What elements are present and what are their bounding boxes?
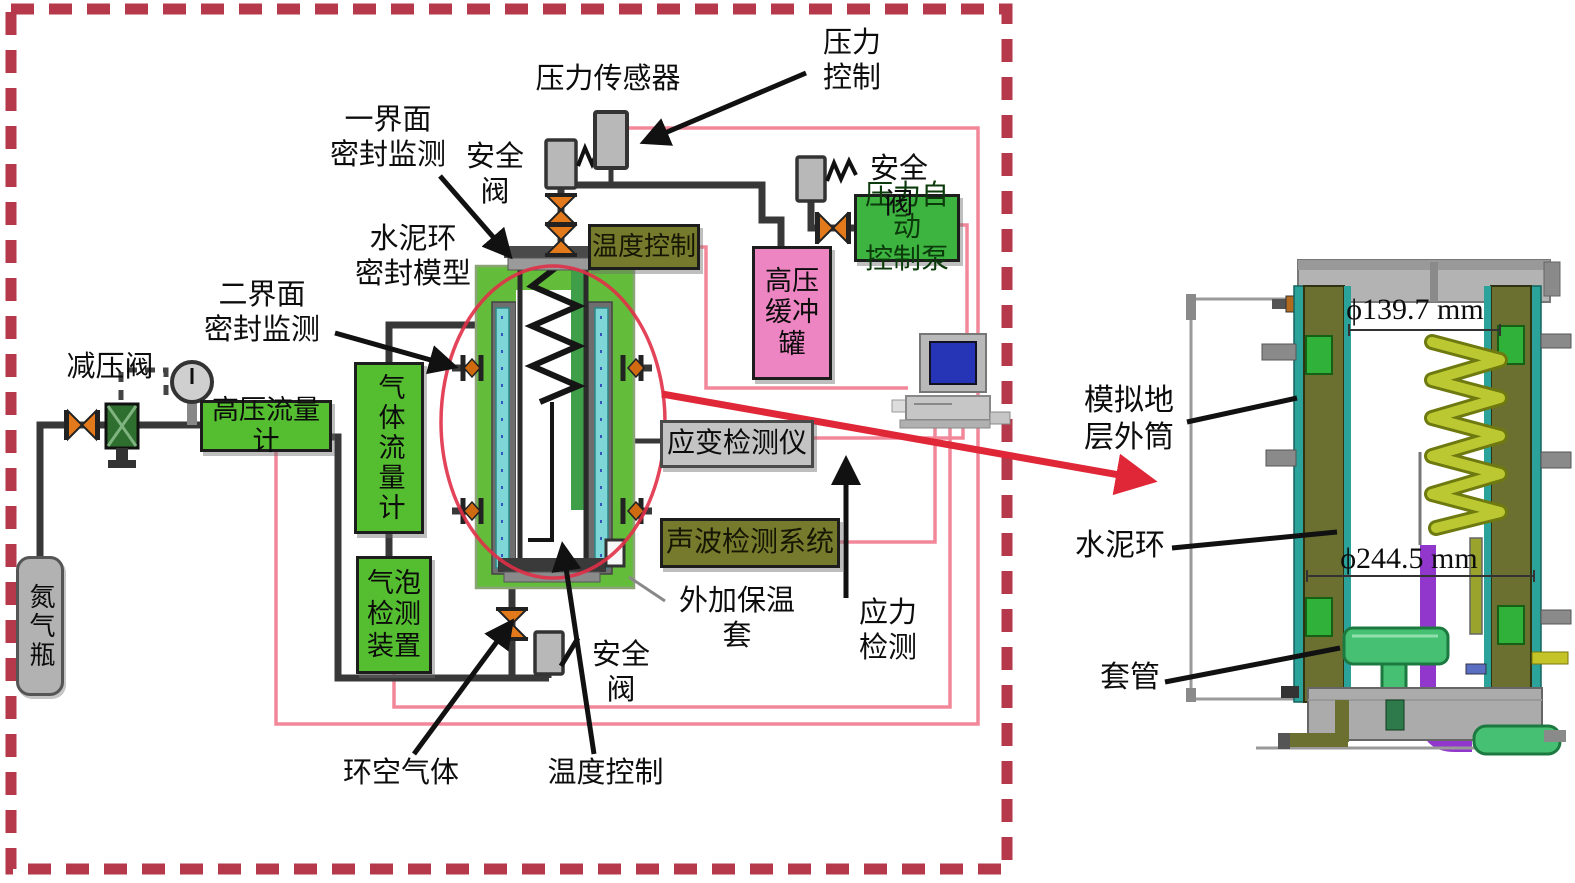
seal-model-vessel [476, 246, 634, 588]
cement-ring-label: 水泥环 [1066, 528, 1174, 565]
outer-cylinder-label: 模拟地 层外筒 [1068, 383, 1190, 456]
cement-seal-model-label: 水泥环 密封模型 [348, 222, 478, 293]
diameter-mid-label: ϕ244.5 mm [1338, 541, 1480, 578]
hp-buffer-tank-box: 高压缓冲罐 [752, 246, 832, 380]
pressure-sensor-icon [595, 112, 627, 168]
hp-flowmeter-box: 高压流量计 [200, 400, 332, 452]
safety-valve-bottom-label: 安全阀 [578, 638, 664, 709]
acoustic-detector-box: 声波检测系统 [660, 518, 840, 568]
nitrogen-bottle: 氮气瓶 [16, 556, 64, 696]
reducer-valve-label: 减压阀 [64, 350, 156, 385]
hp-buffer-tank-label: 高压缓冲罐 [761, 266, 823, 359]
annular-gas-label: 环空气体 [336, 756, 466, 791]
safety-valve-right-label: 安全阀 [856, 152, 942, 223]
computer-icon [892, 334, 1010, 428]
bubble-detector-label: 气泡检测装置 [363, 568, 425, 661]
gas-flowmeter-box: 气体流量计 [354, 362, 424, 534]
temp-control-box: 温度控制 [588, 224, 700, 270]
pressure-sensor-label: 压力传感器 [533, 62, 683, 97]
model-3d [1165, 260, 1571, 754]
diameter-top-label: ϕ139.7 mm [1345, 292, 1485, 329]
bubble-detector-box: 气泡检测装置 [356, 556, 432, 674]
interface1-monitor-label: 一界面 密封监测 [318, 103, 458, 174]
strain-detector-box: 应变检测仪 [660, 420, 814, 468]
casing-label: 套管 [1088, 660, 1172, 697]
safety-valve-bottom-icon [535, 632, 578, 674]
diagram-canvas: 氮气瓶 高压流量计 气体流量计 气泡检测装置 温度控制 高压缓冲罐 压力自动 控… [0, 0, 1575, 883]
temp-control-bottom-label: 温度控制 [538, 756, 673, 791]
pressure-control-label: 压力 控制 [812, 26, 892, 97]
safety-valve-right-icon [797, 157, 856, 201]
interface2-monitor-label: 二界面 密封监测 [192, 278, 332, 349]
external-insulation-label: 外加保温套 [666, 584, 808, 655]
pressure-reducer-valve-icon [66, 404, 138, 468]
stress-detection-label: 应力 检测 [838, 596, 938, 667]
safety-valve-top-label: 安全阀 [452, 140, 538, 211]
